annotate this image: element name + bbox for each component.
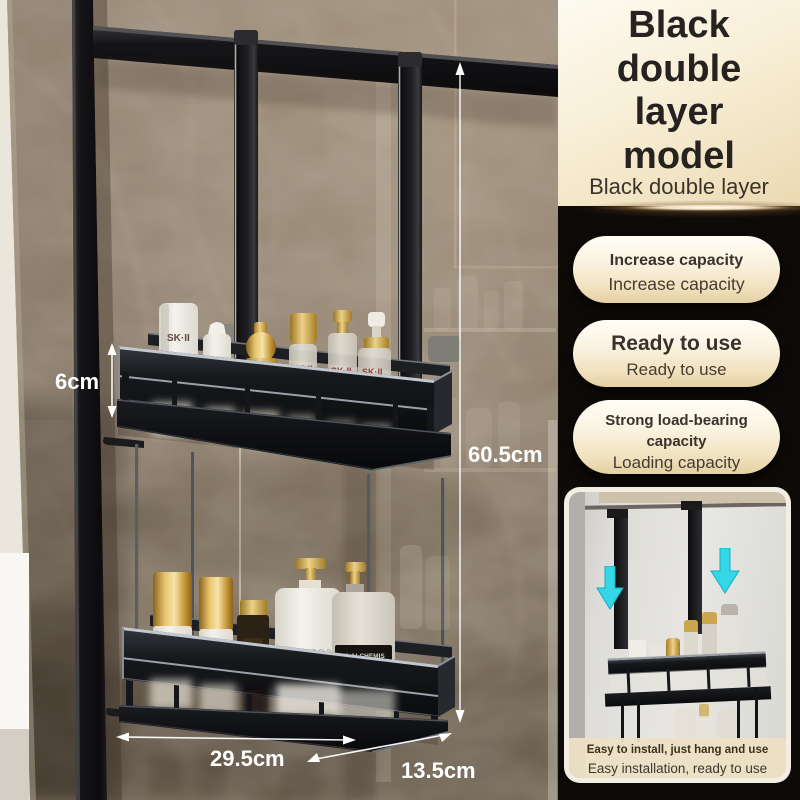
svg-text:SK·II: SK·II [167, 333, 190, 344]
svg-text:60.5cm: 60.5cm [468, 442, 543, 467]
svg-text:6cm: 6cm [55, 369, 99, 394]
svg-text:13.5cm: 13.5cm [401, 758, 476, 783]
svg-text:29.5cm: 29.5cm [210, 746, 285, 771]
